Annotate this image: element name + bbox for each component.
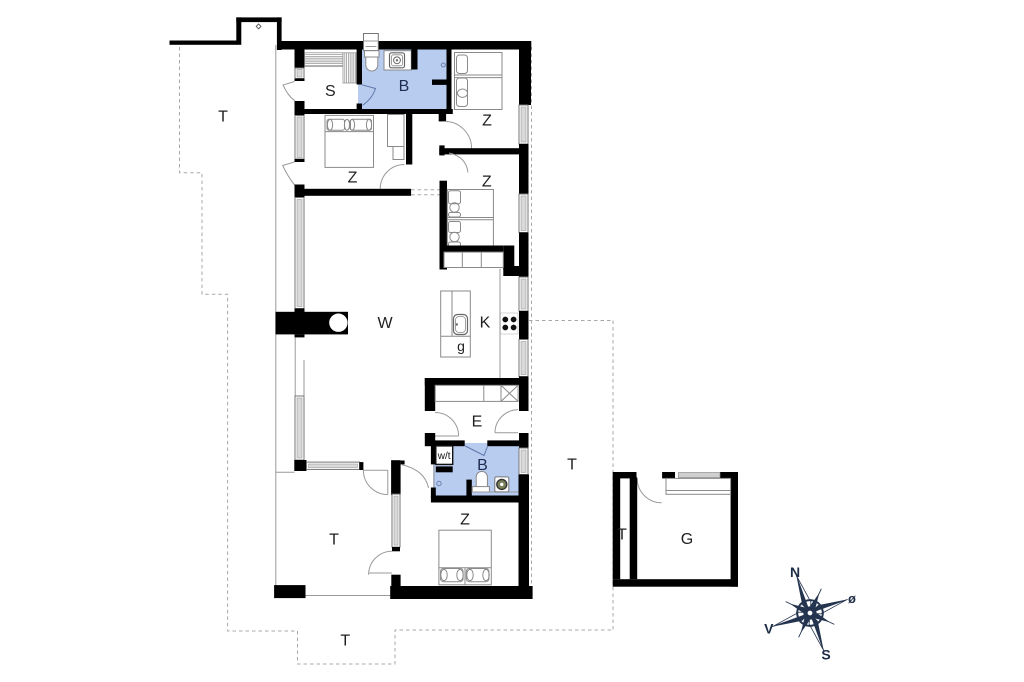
svg-text:Z: Z bbox=[460, 512, 470, 529]
svg-text:G: G bbox=[681, 531, 693, 548]
svg-text:T: T bbox=[617, 527, 627, 544]
svg-text:Z: Z bbox=[482, 113, 492, 130]
svg-text:S: S bbox=[821, 647, 830, 663]
svg-text:Z: Z bbox=[482, 174, 492, 191]
svg-text:T: T bbox=[340, 633, 350, 650]
svg-text:S: S bbox=[325, 83, 336, 100]
svg-text:V: V bbox=[764, 621, 774, 637]
svg-text:E: E bbox=[472, 414, 483, 431]
svg-text:K: K bbox=[480, 315, 491, 332]
svg-text:g: g bbox=[457, 338, 465, 354]
svg-text:T: T bbox=[218, 109, 228, 126]
svg-text:B: B bbox=[399, 78, 410, 95]
svg-text:W: W bbox=[377, 315, 393, 332]
svg-text:T: T bbox=[567, 457, 577, 474]
svg-text:w/t: w/t bbox=[437, 451, 451, 462]
svg-text:T: T bbox=[329, 532, 339, 549]
svg-text:N: N bbox=[790, 564, 800, 580]
svg-text:Z: Z bbox=[348, 170, 358, 187]
svg-text:ø: ø bbox=[848, 591, 856, 606]
